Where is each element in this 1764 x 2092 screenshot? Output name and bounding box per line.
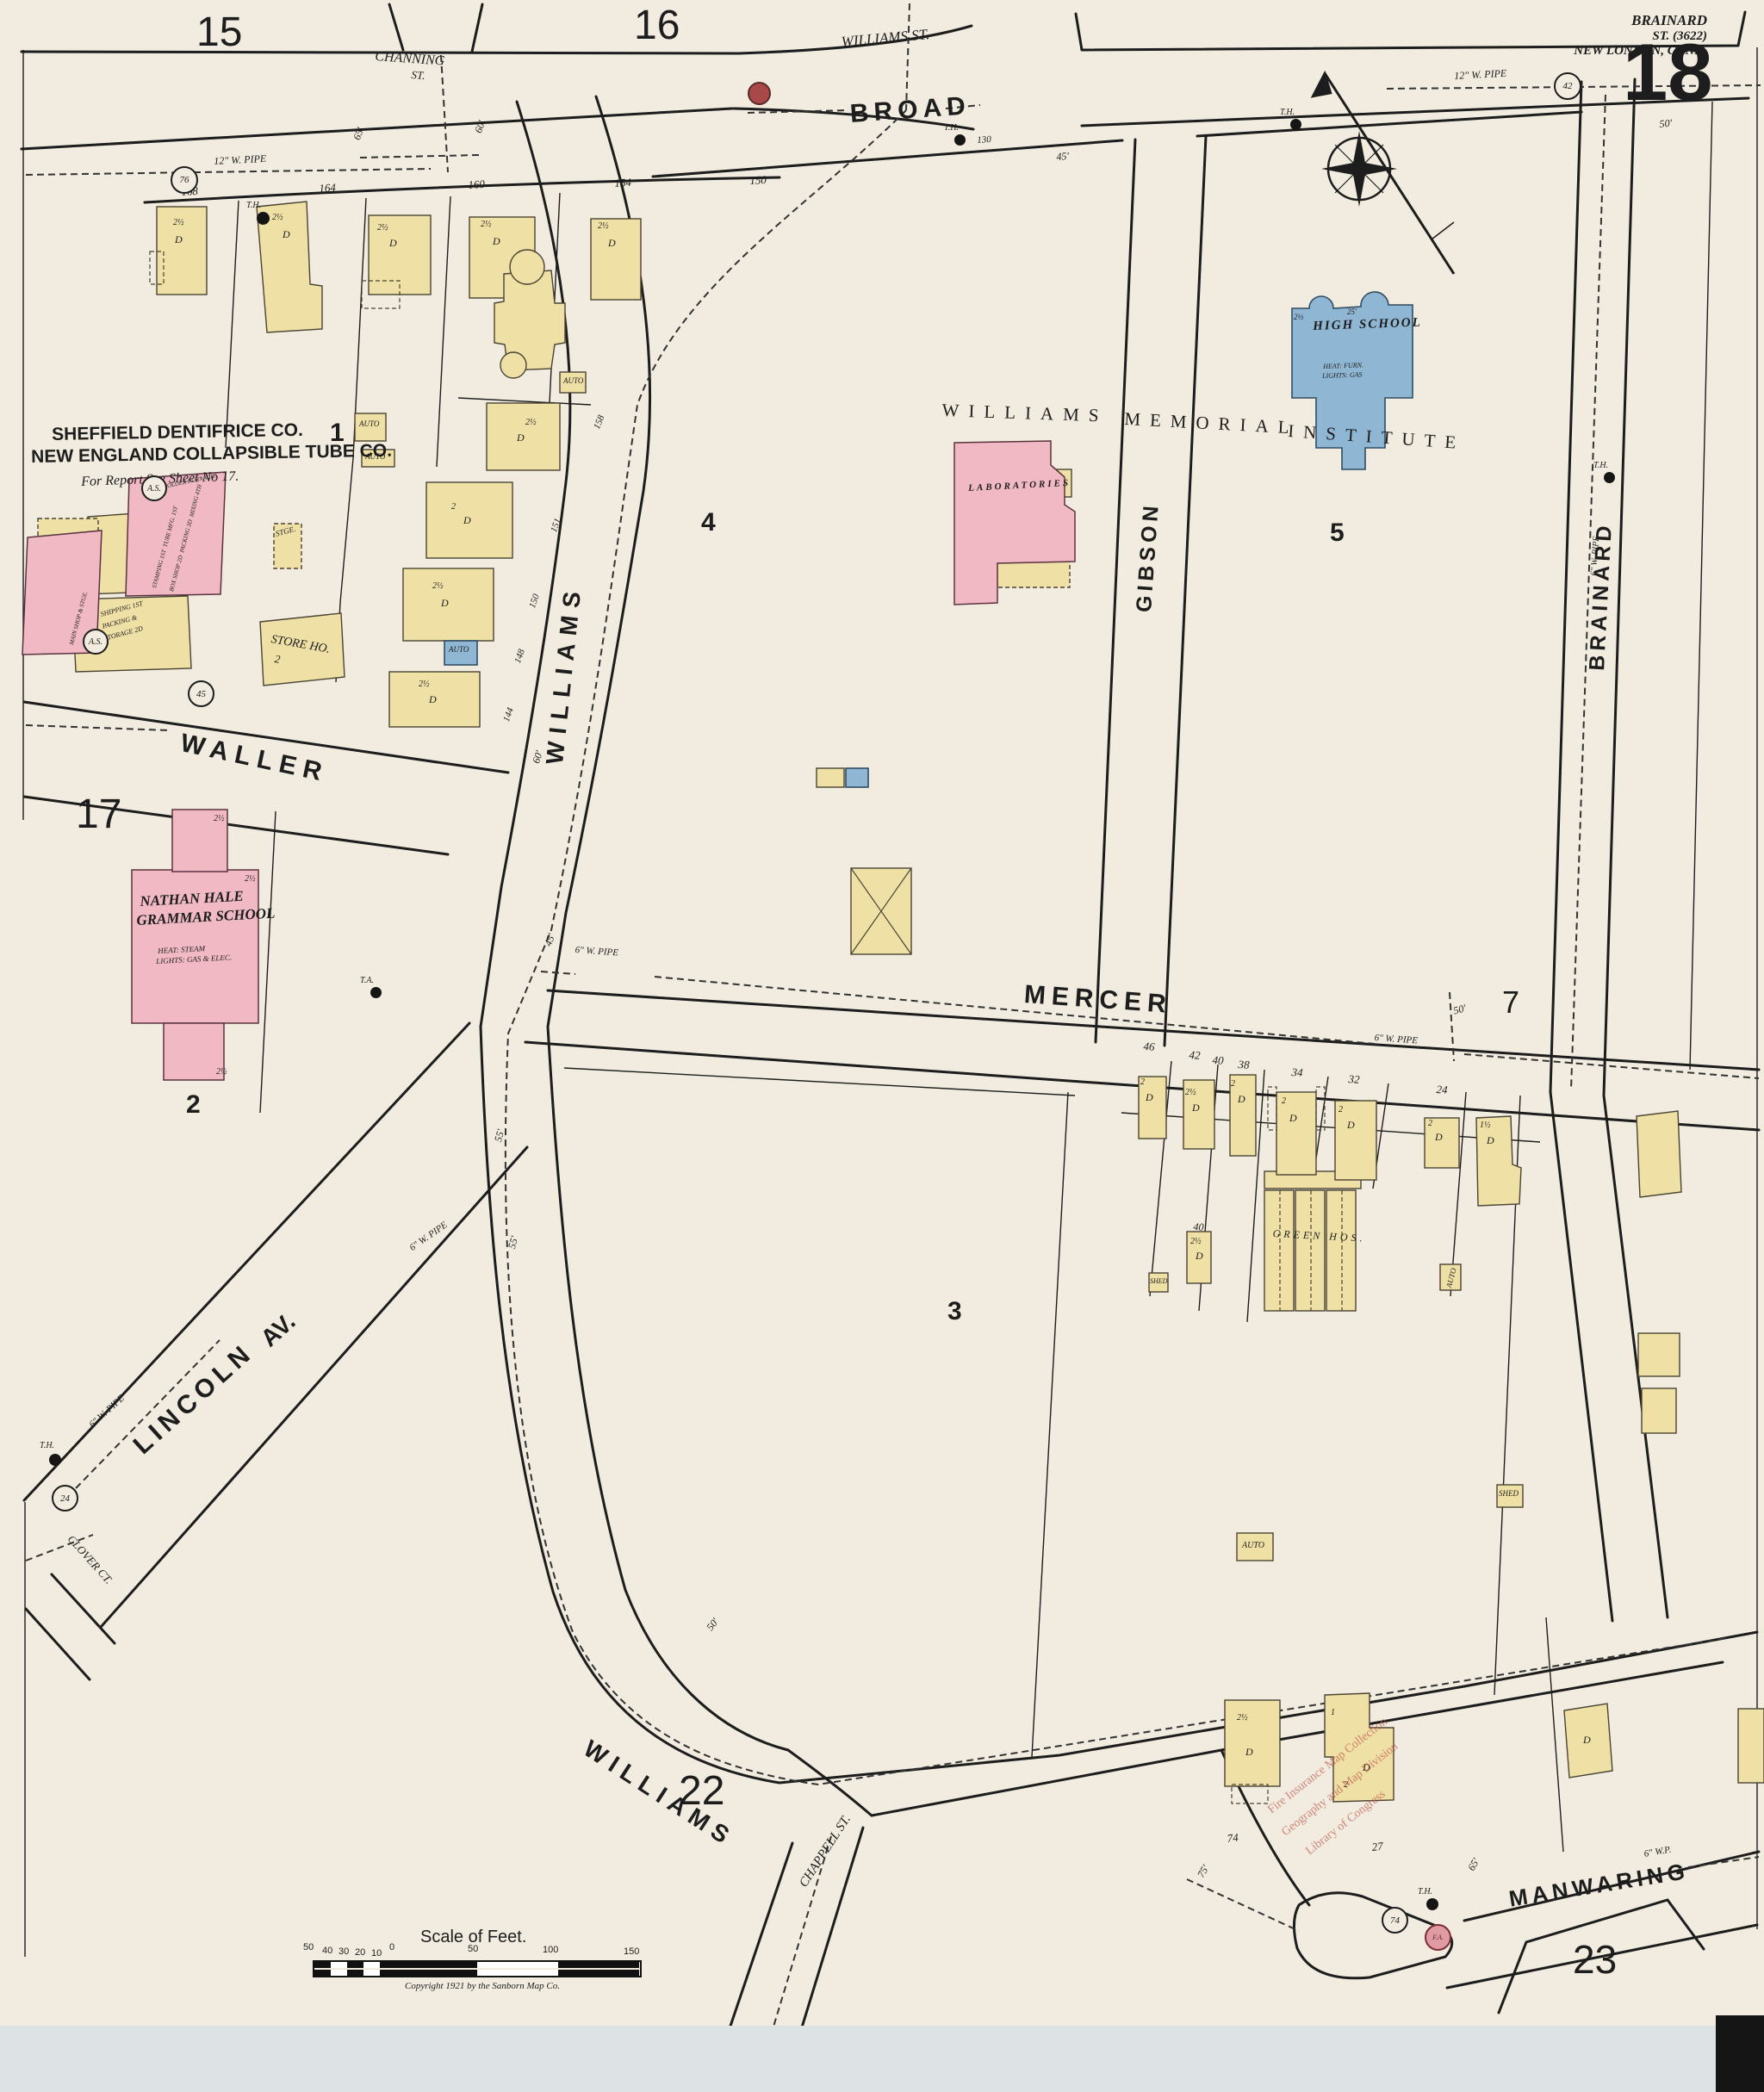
street-mercer: MERCER: [1023, 982, 1173, 1018]
th-label-2: T.H.: [944, 124, 959, 133]
hn-148: 148: [513, 648, 527, 664]
width-50-williams-bottom: 50': [705, 1617, 720, 1633]
width-45-mercer: 45': [543, 932, 556, 947]
tick-40: 40: [322, 1946, 332, 1956]
tick-150: 150: [624, 1947, 639, 1957]
dwelling-d: D: [1146, 1092, 1153, 1102]
dwelling-d: D: [389, 238, 397, 248]
dwelling-d: D: [1347, 1120, 1355, 1130]
shed-1: SHED: [1499, 1490, 1519, 1498]
hydrant-dot: [748, 82, 771, 105]
wmi-memorial: MEMORIAL: [1124, 410, 1299, 438]
block-2: 2: [186, 1092, 201, 1118]
hn-27: 27: [1371, 1841, 1383, 1853]
dwelling-d: D: [175, 234, 183, 245]
dwelling-d: D: [493, 236, 500, 246]
stories: 2: [1428, 1120, 1432, 1128]
street-waller: WALLER: [178, 730, 331, 787]
stories: 2½: [1185, 1089, 1196, 1097]
sheffield-co-line1: SHEFFIELD DENTIFRICE CO.: [52, 421, 303, 444]
nathan-hale-heat: HEAT: STEAM: [158, 945, 205, 955]
factory-shipping-1: SHIPPING 1ST: [100, 600, 144, 618]
sheet-17: 17: [76, 794, 121, 835]
high-school-stories: 2½: [1294, 313, 1303, 321]
wmi-williams: WILLIAMS: [941, 401, 1109, 425]
street-clover-ct: CLOVER CT.: [65, 1533, 115, 1586]
street-manwaring: MANWARING: [1507, 1859, 1691, 1910]
dwelling-d: D: [429, 694, 437, 705]
stories: 2½: [245, 875, 256, 884]
stories: 2½: [173, 219, 184, 227]
dwelling-d: D: [517, 432, 525, 443]
th-label-6: T.H.: [1418, 1888, 1432, 1896]
factory-dept-2: BOX SHOP 2D PACKING 3D MIXING 4TH: [169, 484, 203, 593]
stories: 2: [1339, 1106, 1343, 1114]
auto-sprinkler-2: A.S.: [83, 629, 109, 655]
auto-2: AUTO: [365, 453, 385, 461]
hn-158: 158: [593, 414, 606, 431]
dwelling-d: D: [1289, 1113, 1297, 1123]
sheffield-co-line2: NEW ENGLAND COLLAPSIBLE TUBE CO.: [31, 442, 392, 466]
dwelling-d: D: [1487, 1135, 1494, 1145]
lot-45-broad: 45': [1056, 151, 1069, 162]
stories: 2: [1140, 1078, 1145, 1087]
pipe-junction-74: 74: [1382, 1907, 1408, 1934]
scale-bar-midline: [314, 1968, 640, 1970]
pipe-6-lincoln: 6" W. PIPE: [88, 1394, 127, 1430]
hn-46: 46: [1143, 1040, 1155, 1052]
width-65-manwaring: 65': [1466, 1856, 1481, 1872]
street-lincoln-av: AV.: [257, 1309, 300, 1351]
sanborn-map-sheet: 15161722237CHANNINGST.WILLIAMS ST.BROADW…: [0, 0, 1764, 2092]
street-channing-st: ST.: [411, 69, 425, 81]
sheet-16: 16: [634, 5, 680, 47]
hn-34: 34: [1291, 1066, 1303, 1078]
dwelling-d: D: [1192, 1102, 1200, 1113]
test-hole-dot-6: [1426, 1898, 1438, 1910]
auto-1: AUTO: [359, 420, 379, 428]
nathan-hale-line2: GRAMMAR SCHOOL: [136, 906, 276, 928]
street-chappell: CHAPPELL ST.: [798, 1813, 854, 1890]
test-hole-dot-2: [954, 134, 966, 146]
label-layer: 15161722237CHANNINGST.WILLIAMS ST.BROADW…: [0, 0, 1764, 2092]
pipe-junction-45: 45: [188, 680, 214, 707]
test-hole-dot-7: [370, 987, 382, 998]
stories: 2½: [1237, 1714, 1248, 1723]
street-williams-top: WILLIAMS ST.: [841, 27, 930, 49]
laboratories-label: LABORATORIES: [968, 479, 1071, 494]
pipe-6-mercer-west: 6" W. PIPE: [575, 946, 618, 958]
high-school-heat: HEAT: FURN.: [1323, 362, 1363, 370]
dwelling-d: D: [441, 598, 449, 608]
hn-32: 32: [1348, 1073, 1360, 1085]
street-channing: CHANNING: [375, 50, 445, 69]
fire-alarm-circle: F.A.: [1425, 1924, 1451, 1951]
stories: 2½: [525, 419, 537, 427]
stories: 2½: [272, 214, 283, 222]
street-gibson: GIBSON: [1134, 501, 1163, 613]
dwelling-d: D: [1583, 1735, 1591, 1745]
stories: 1½: [1480, 1121, 1491, 1130]
pipe-6-mercer-east: 6" W. PIPE: [1374, 1034, 1418, 1046]
hn-40b: 40: [1193, 1221, 1204, 1232]
width-55-2: 55': [506, 1235, 519, 1250]
th-label-3: T.H.: [1280, 109, 1295, 117]
high-school-label: HIGH SCHOOL: [1313, 317, 1422, 333]
dwelling-d: D: [1238, 1094, 1245, 1104]
stories: 2: [451, 503, 456, 512]
dwelling-d: D: [283, 229, 290, 239]
block-5: 5: [1330, 520, 1345, 546]
sheet-15: 15: [196, 12, 242, 53]
stories: 2½: [481, 220, 492, 229]
hn-144: 144: [502, 706, 516, 723]
width-65-channing: 65': [351, 126, 365, 141]
tick-50l: 50: [303, 1943, 314, 1952]
test-hole-dot-3: [1290, 119, 1301, 130]
dwelling-d: D: [463, 515, 471, 525]
width-75-island: 75': [1196, 1863, 1211, 1879]
block-4: 4: [701, 510, 716, 536]
green-houses-label: GREEN HOS.: [1272, 1228, 1365, 1244]
hn-74: 74: [1227, 1832, 1239, 1844]
store-ho-stories: 2: [274, 653, 282, 665]
auto-6: AUTO: [1242, 1542, 1264, 1550]
hn-150: 150: [749, 174, 767, 186]
stories: 1: [1331, 1709, 1335, 1717]
dwelling-d: D: [1196, 1251, 1203, 1261]
hn-160: 160: [468, 178, 485, 190]
hn-164: 164: [319, 182, 336, 194]
pipe-12-top-left: 12" W. PIPE: [214, 153, 266, 166]
hn-24: 24: [1436, 1083, 1448, 1096]
width-60-channing: 60': [473, 119, 487, 134]
stories: 2½: [1190, 1238, 1202, 1246]
dwelling-d: D: [1435, 1132, 1443, 1142]
street-lincoln: LINCOLN: [129, 1339, 258, 1460]
th-label-5: T.H.: [40, 1442, 54, 1450]
street-williams-vertical: WILLIAMS: [543, 583, 586, 766]
sheet-7: 7: [1502, 987, 1519, 1018]
lot-50-gibson: 50': [1452, 1003, 1467, 1015]
nathan-hale-lights: LIGHTS: GAS & ELEC.: [156, 953, 232, 965]
auto-3: AUTO: [449, 646, 469, 654]
scan-edge-strip: [0, 2026, 1764, 2092]
auto-5: AUTO: [1445, 1267, 1458, 1288]
width-55-1: 55': [493, 1128, 506, 1143]
stories: 2: [1282, 1097, 1286, 1106]
high-school-25: 25': [1347, 308, 1357, 316]
tick-30: 30: [339, 1947, 349, 1957]
hn-151: 151: [550, 517, 563, 533]
scan-black-corner: [1716, 2015, 1764, 2092]
dwelling-d: D: [608, 238, 616, 248]
lot-130: 130: [977, 135, 991, 146]
tick-20: 20: [355, 1948, 365, 1958]
hn-150b: 150: [528, 593, 542, 609]
block-3: 3: [947, 1299, 962, 1325]
lot-50-topright: 50': [1659, 117, 1673, 128]
pipe-12-top-right: 12" W. PIPE: [1454, 68, 1506, 81]
auto-4: AUTO: [563, 377, 583, 385]
stories: 2½: [598, 222, 609, 231]
test-hole-dot-1: [257, 212, 270, 225]
pipe-junction-76: 76: [171, 166, 198, 194]
stories: 2½: [432, 582, 444, 591]
scale-title: Scale of Feet.: [420, 1927, 526, 1947]
pipe-6-manwaring: 6" W.P.: [1643, 1845, 1672, 1859]
high-school-lights: LIGHTS: GAS: [1322, 371, 1363, 380]
stge-label: STGE.: [275, 525, 296, 538]
test-hole-dot-4: [1604, 472, 1615, 483]
nathan-hale-line1: NATHAN HALE: [140, 889, 244, 909]
street-broad: BROAD: [849, 93, 972, 127]
hn-154: 154: [614, 177, 631, 189]
stories: 2½: [419, 680, 430, 689]
tick-10: 10: [371, 1949, 382, 1959]
hn-42: 42: [1189, 1049, 1201, 1061]
pipe-junction-24: 24: [52, 1485, 78, 1512]
dwelling-d: D: [1245, 1747, 1253, 1757]
sheet-23: 23: [1573, 1940, 1617, 1979]
copyright-notice: Copyright 1921 by the Sanborn Map Co.: [405, 1981, 560, 1991]
scale-bar: [313, 1960, 642, 1977]
th-label-4: T.H.: [1593, 462, 1608, 470]
hn-38: 38: [1238, 1058, 1250, 1071]
stories: 2½: [377, 224, 388, 233]
stories: 2½: [216, 1068, 227, 1077]
sheet-number: 18: [1623, 26, 1713, 119]
test-hole-dot-5: [49, 1454, 61, 1466]
pipe-6-williams: 6" W. PIPE: [408, 1220, 450, 1253]
stories: 2: [1231, 1080, 1235, 1089]
th-label-1: T.H.: [246, 202, 261, 210]
shed-2: SHED: [1150, 1278, 1167, 1285]
auto-sprinkler-1: A.S.: [141, 475, 167, 501]
hn-40: 40: [1212, 1054, 1224, 1066]
stories: 2½: [214, 815, 225, 823]
tick-0: 0: [389, 1943, 394, 1952]
ta-label-1: T.A.: [360, 977, 374, 985]
tick-100: 100: [543, 1946, 558, 1955]
wmi-institute: INSTITUTE: [1288, 422, 1466, 452]
pipe-junction-42: 42: [1554, 72, 1581, 100]
